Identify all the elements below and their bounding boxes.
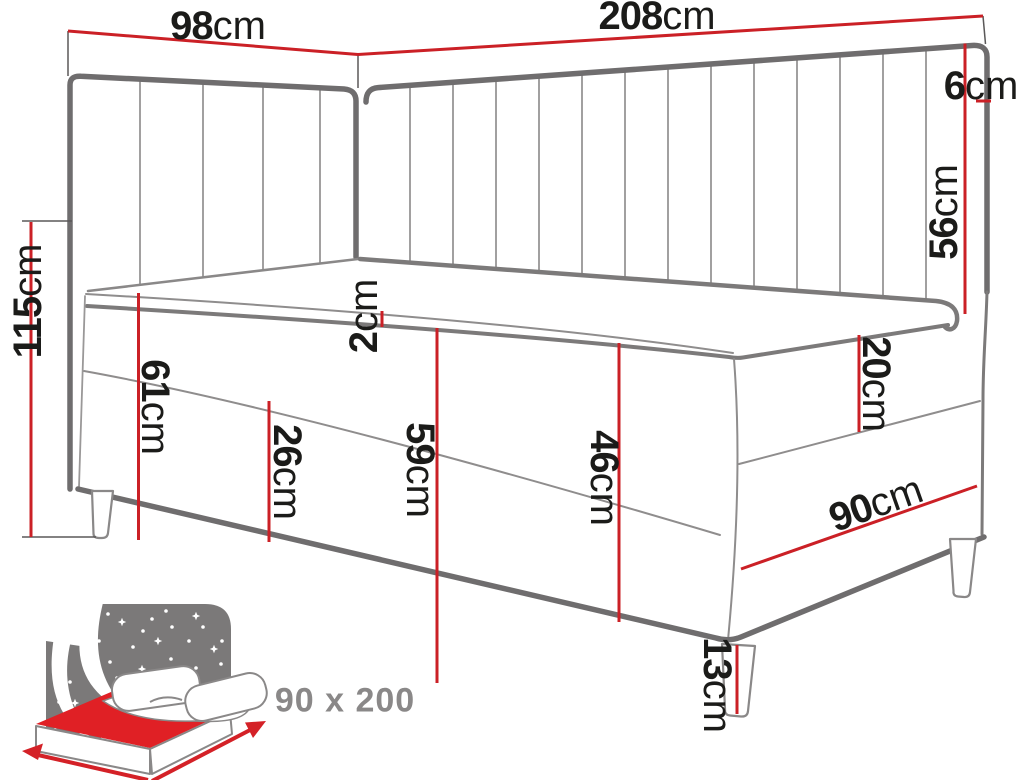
dimension-label-13cm: 13cm <box>697 637 737 733</box>
mattress-top-front-edge <box>86 294 733 353</box>
dimension-label-61cm: 61cm <box>135 359 175 455</box>
diagram-stage: 98cm 208cm 6cm 56cm 115cm 2cm 61cm 26cm … <box>0 0 1020 780</box>
dimension-label-115cm: 115cm <box>8 244 48 359</box>
dimension-label-56cm: 56cm <box>924 164 964 260</box>
base-left-edge <box>79 296 85 487</box>
connector-208-right <box>983 16 986 44</box>
right-headboard-frame <box>366 45 987 292</box>
dimension-label-59cm: 59cm <box>400 422 440 518</box>
dimension-label-20cm: 20cm <box>856 336 896 432</box>
right-leg <box>950 539 976 597</box>
dimension-diagram-page: { "diagram": { "type": "furniture-dimens… <box>0 0 1020 780</box>
right-headboard-side-edge <box>982 292 987 534</box>
mattress-piping-edge <box>87 306 948 358</box>
mattress-back-left-edge <box>88 259 358 291</box>
front-corner-seam <box>728 359 738 640</box>
dimension-label-2cm: 2cm <box>344 279 384 354</box>
mattress-back-right-edge <box>360 259 957 329</box>
dimension-label-208cm: 208cm <box>598 0 715 36</box>
bed-size-caption: 90 x 200 <box>275 682 415 721</box>
dimension-label-46cm: 46cm <box>584 430 624 526</box>
dimension-label-98cm: 98cm <box>170 6 266 46</box>
left-leg <box>92 491 113 538</box>
bed-size-icon <box>22 599 270 780</box>
dimension-label-6cm: 6cm <box>944 66 1019 106</box>
dimension-label-26cm: 26cm <box>267 424 307 520</box>
left-headboard-frame <box>70 76 356 489</box>
